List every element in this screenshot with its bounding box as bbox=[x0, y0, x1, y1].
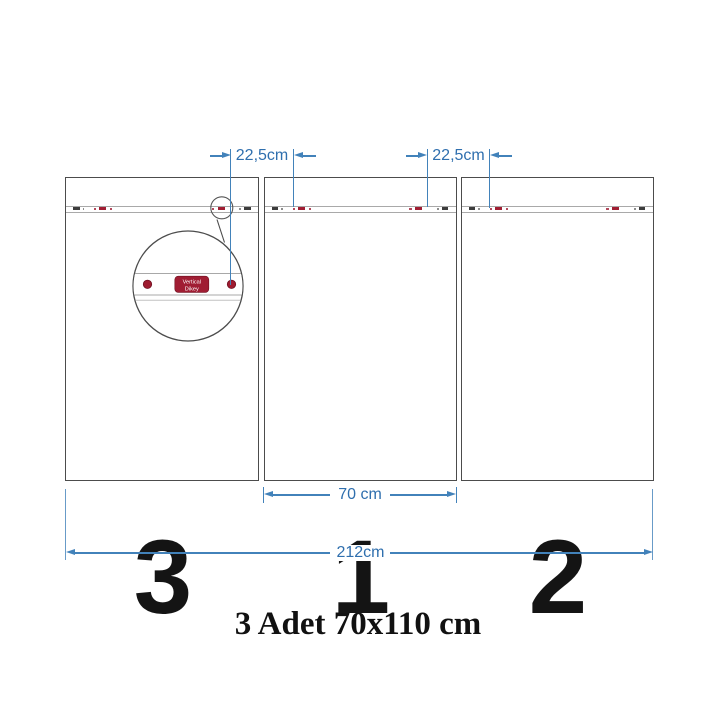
badge-line1: Vertical bbox=[183, 280, 201, 286]
dimension-diagram: 3 1 bbox=[0, 0, 720, 720]
hanger-dot-right bbox=[227, 280, 235, 288]
badge-line2: Dikey bbox=[185, 286, 199, 292]
magnifier-source-circle bbox=[211, 197, 233, 219]
magnifier-callout: Vertical Dikey bbox=[0, 0, 720, 720]
hanger-dot-left bbox=[143, 280, 151, 288]
magnifier-connector-line bbox=[217, 220, 225, 243]
